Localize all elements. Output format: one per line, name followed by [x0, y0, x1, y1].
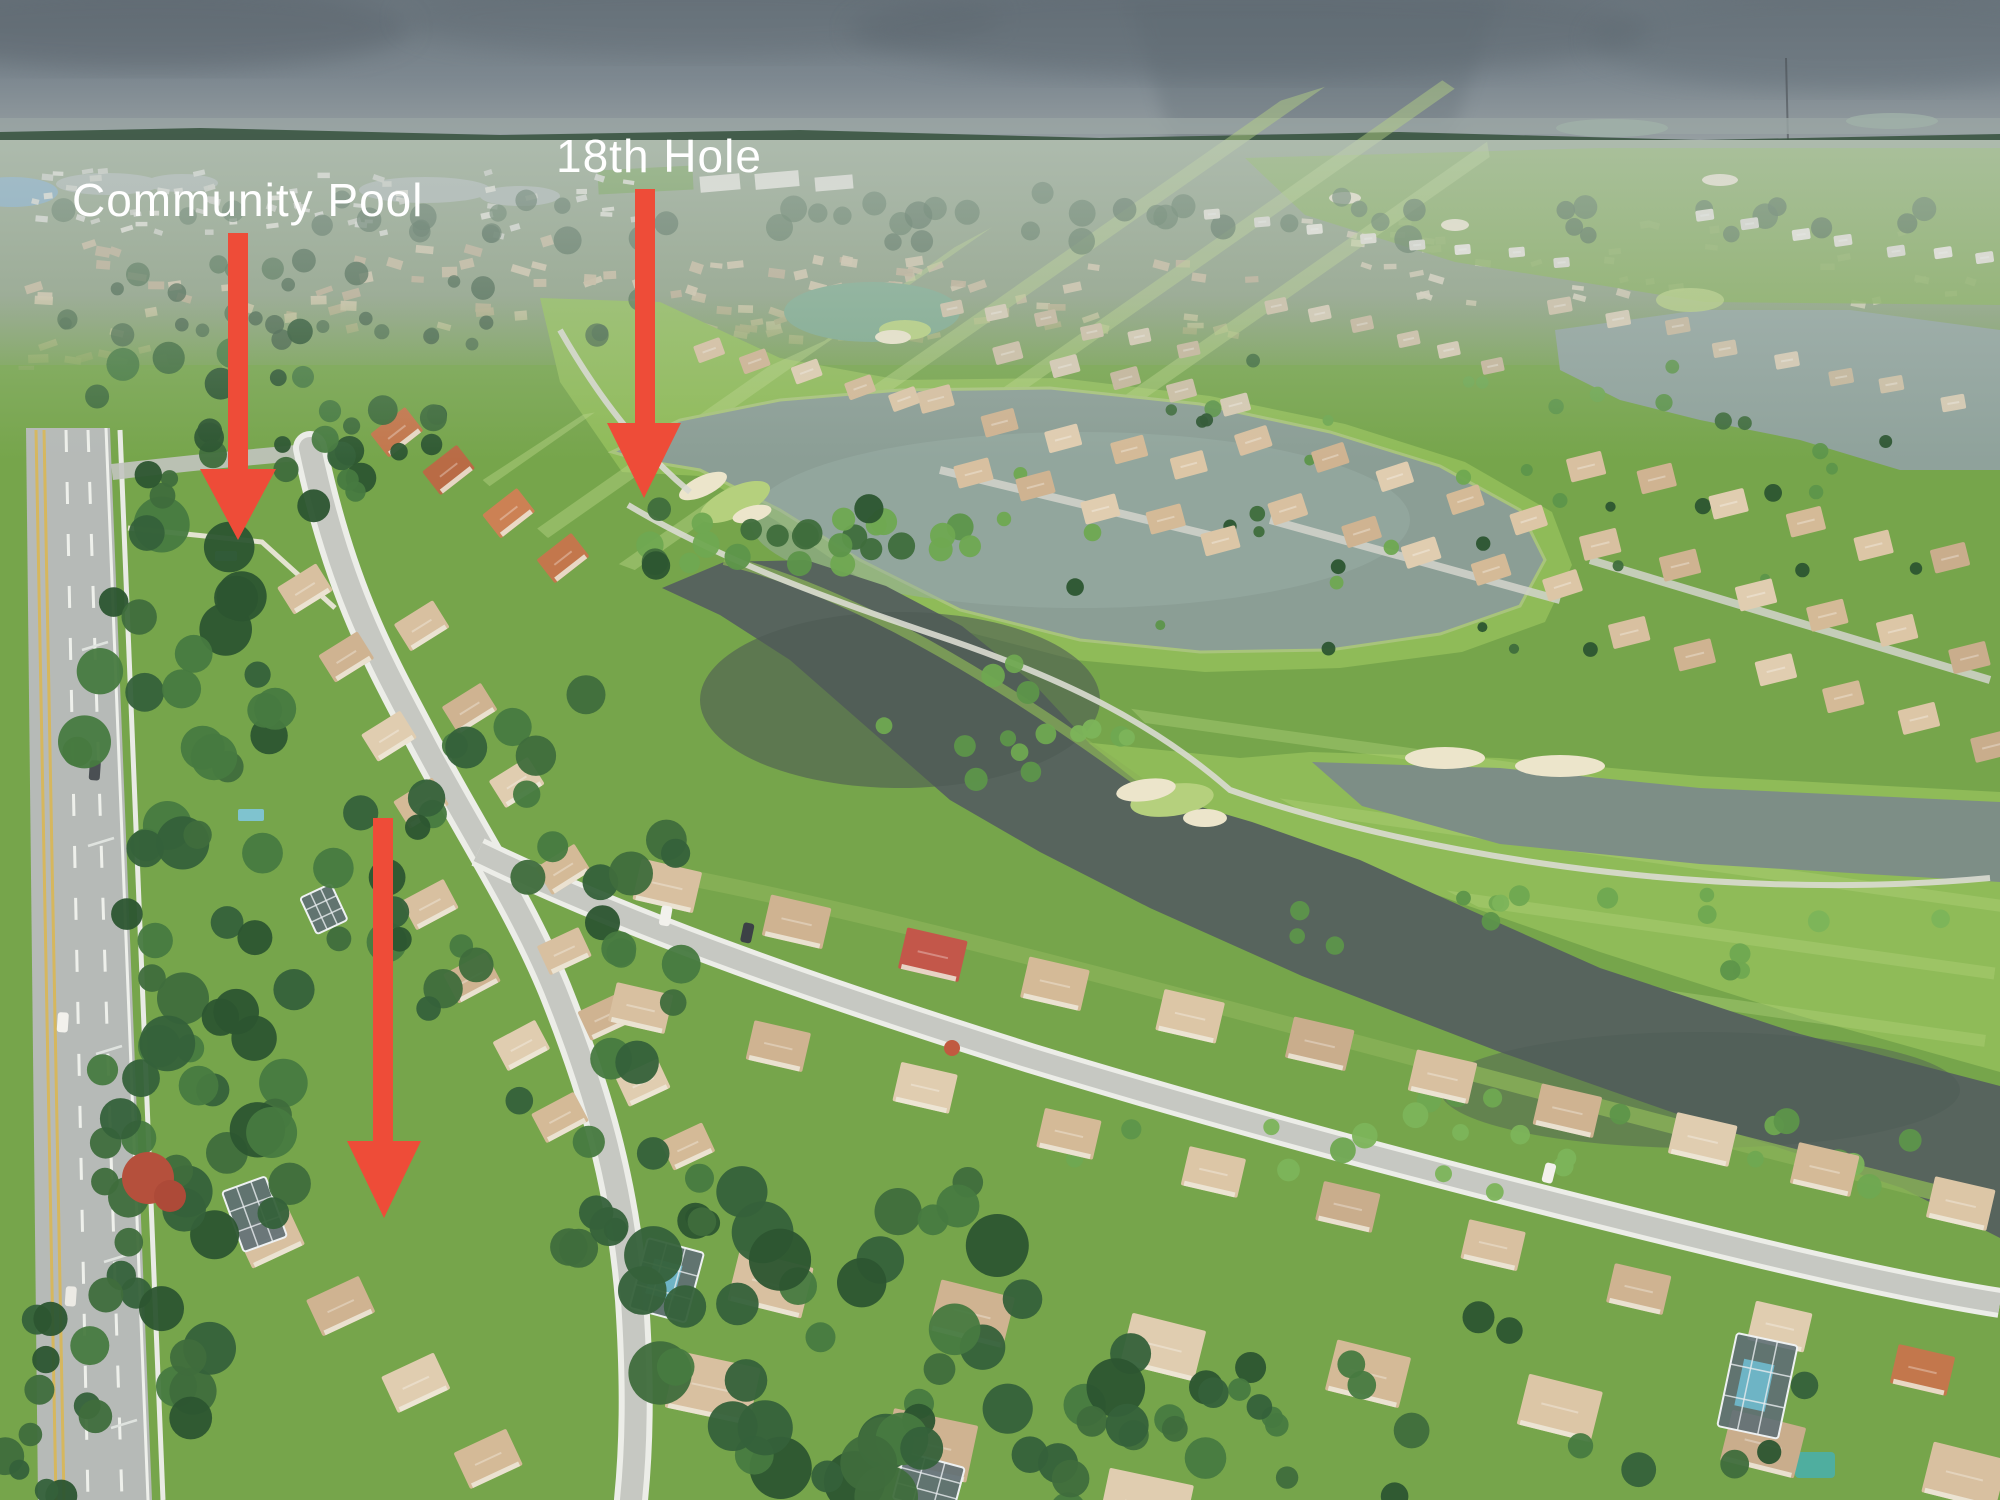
car [65, 1286, 77, 1307]
annotation-label-community-pool: Community Pool [72, 174, 423, 226]
scene-canvas: Community Pool 18th Hole [0, 0, 2000, 1500]
private-pool [238, 809, 264, 821]
corner-pool [1795, 1452, 1835, 1478]
car [57, 1012, 69, 1033]
annotation-label-18th-hole: 18th Hole [556, 130, 762, 182]
aerial-photo: Community Pool 18th Hole [0, 0, 2000, 1500]
